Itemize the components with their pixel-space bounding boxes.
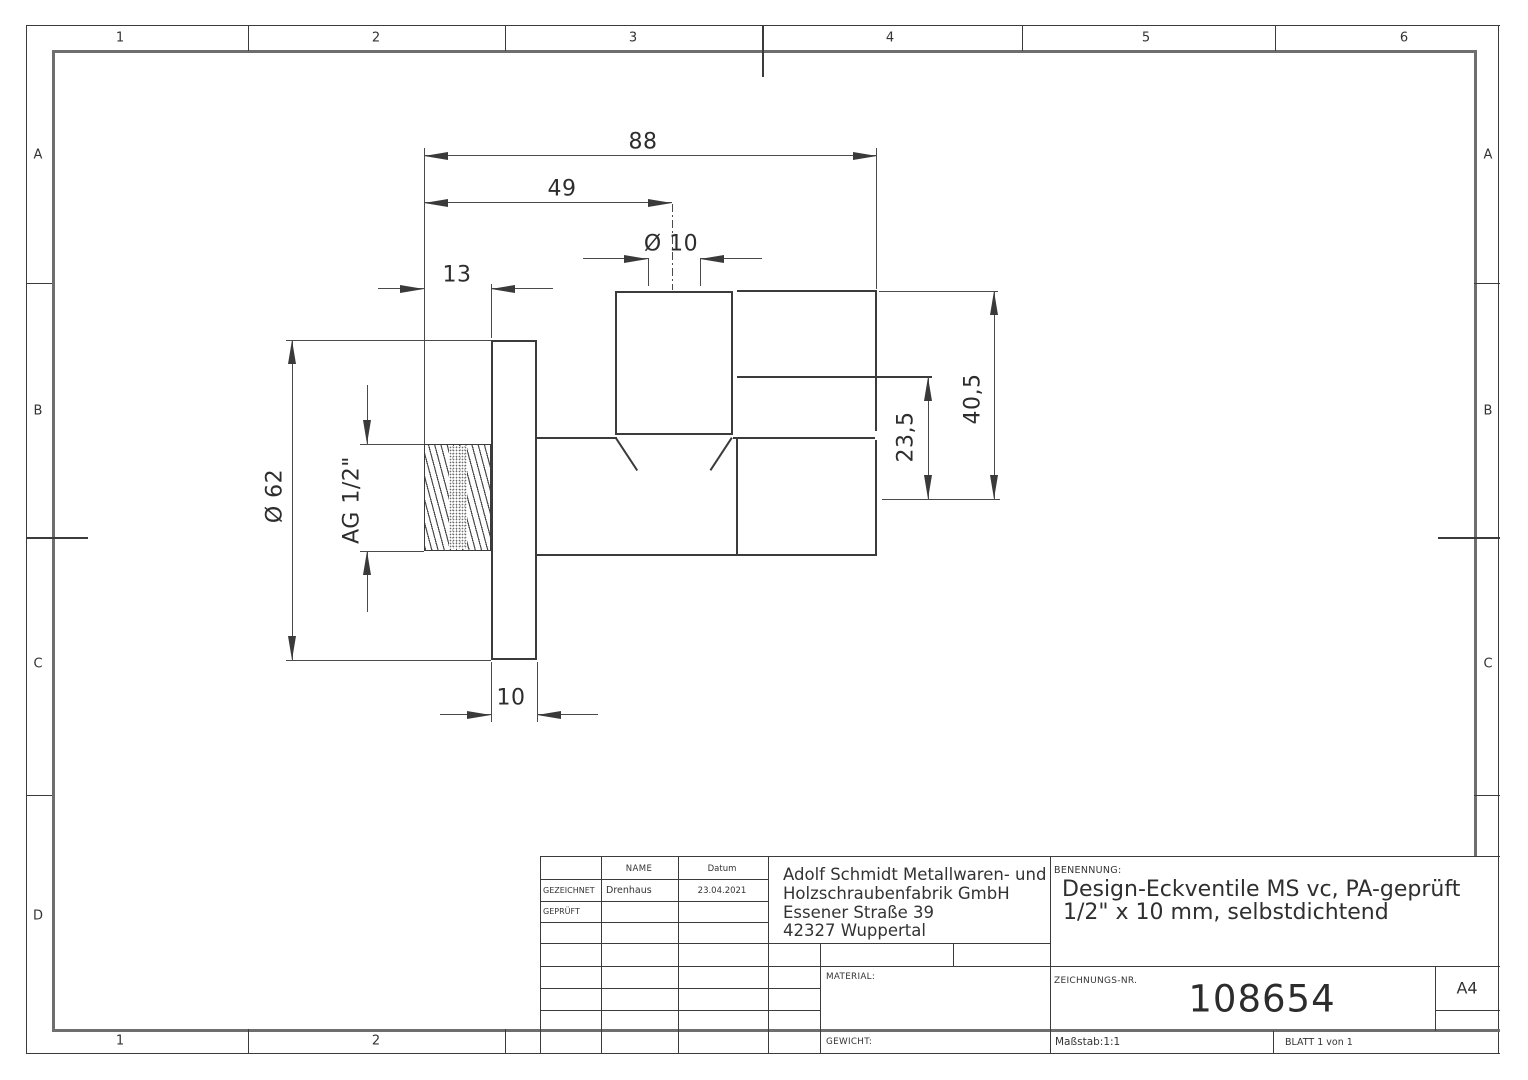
drawn-label: GEZEICHNET [543, 886, 595, 895]
extension-line [424, 148, 425, 444]
outlet-pipe-outline [615, 291, 733, 435]
titleblock-line [540, 988, 820, 989]
chamfer-line [710, 437, 732, 470]
wall-plate-outline [491, 340, 537, 660]
extension-line [882, 499, 1000, 500]
extension-line [286, 340, 491, 341]
dim-ag-label: AG 1/2" [340, 456, 365, 544]
drawing-sheet: 1 2 3 4 5 6 1 2 A B C D A B C 88 [0, 0, 1528, 1080]
dim-arrow [467, 711, 491, 719]
titleblock-line [1050, 856, 1051, 1054]
titleblock-line [1435, 1010, 1500, 1011]
body-inner-edge [736, 439, 738, 556]
grid-tick [248, 25, 249, 51]
handle-step-edge [737, 376, 932, 378]
inner-frame-top [52, 50, 1476, 53]
scale-label: Maßstab:1:1 [1055, 1036, 1120, 1048]
grid-label-col: 6 [1400, 31, 1408, 46]
date-header: Datum [708, 864, 737, 874]
dim-arrow [400, 285, 424, 293]
inner-frame-right [1474, 50, 1477, 857]
dim-10-label: 10 [497, 686, 526, 711]
grid-label-row: B [34, 404, 43, 419]
dim-arrow [853, 152, 877, 160]
weight-label: GEWICHT: [826, 1037, 872, 1047]
sheet-label: BLATT 1 von 1 [1285, 1037, 1353, 1048]
titleblock-line [1435, 966, 1436, 1031]
dim-88-line [424, 155, 877, 156]
paper-format: A4 [1456, 979, 1477, 998]
titleblock-line [540, 966, 1500, 967]
titleblock-line [540, 1010, 820, 1011]
inner-frame-left [52, 50, 55, 1031]
grid-tick [1275, 25, 1276, 51]
drawing-no-label: ZEICHNUNGS-NR. [1054, 976, 1137, 986]
material-label: MATERIAL: [826, 972, 875, 982]
grid-tick [26, 283, 52, 284]
titleblock-line [1273, 1031, 1274, 1054]
titleblock-line [601, 856, 602, 1054]
dim-49-line [424, 202, 672, 203]
body-bottom-edge [537, 554, 877, 556]
dim-arrow [363, 551, 371, 575]
handle-top-edge [737, 290, 877, 292]
titleblock-line [953, 943, 954, 966]
grid-label-row: B [1484, 404, 1493, 419]
dim-405-label: 40,5 [961, 374, 986, 425]
extension-line [879, 291, 998, 292]
dim-d62-label: Ø 62 [263, 469, 288, 523]
grid-tick [505, 1029, 506, 1054]
grid-tick-center [26, 537, 88, 539]
body-top-edge [733, 437, 875, 439]
grid-label-col: 3 [629, 31, 637, 46]
dim-arrow [363, 420, 371, 444]
grid-tick [505, 25, 506, 51]
drawn-by: Drenhaus [606, 885, 652, 896]
drawing-number: 108654 [1188, 978, 1335, 1021]
extension-line [286, 660, 491, 661]
dim-49-label: 49 [548, 177, 577, 202]
outer-border-right [1498, 25, 1499, 1054]
dim-arrow [924, 377, 932, 401]
dim-235-label: 23,5 [894, 412, 919, 463]
company-line: Essener Straße 39 [783, 904, 1046, 923]
dim-arrow [648, 199, 672, 207]
body-top-edge [537, 437, 617, 439]
titleblock-line [540, 856, 1500, 857]
dim-arrow [537, 711, 561, 719]
dim-arrow [288, 340, 296, 364]
name-header: NAME [626, 864, 652, 874]
dim-arrow [990, 475, 998, 499]
grid-label-row: A [34, 148, 43, 163]
part-title-line1: Design-Eckventile MS vc, PA-geprüft [1062, 877, 1460, 902]
titleblock-line [540, 856, 541, 1054]
drawn-date: 23.04.2021 [698, 886, 747, 896]
grid-label-col: 2 [372, 31, 380, 46]
grid-tick [1022, 25, 1023, 51]
titleblock-line [820, 943, 821, 1054]
company-line: 42327 Wuppertal [783, 922, 1046, 941]
extension-line [876, 148, 877, 289]
grid-label-col: 1 [116, 31, 124, 46]
grid-tick [1474, 795, 1500, 796]
dim-d10-label: Ø 10 [644, 232, 698, 257]
dim-88-label: 88 [629, 130, 658, 155]
outer-border-left [26, 25, 27, 1054]
part-title-line2: 1/2" x 10 mm, selbstdichtend [1063, 900, 1389, 925]
dim-arrow [491, 285, 515, 293]
inner-frame-bottom [52, 1029, 1500, 1032]
dim-arrow [700, 255, 724, 263]
titleblock-line [678, 856, 679, 1054]
thread-seal-band [449, 446, 467, 549]
dim-405-line [994, 291, 995, 499]
grid-tick [1474, 283, 1500, 284]
grid-tick-center [1438, 537, 1500, 539]
dim-arrow [924, 475, 932, 499]
dim-arrow [424, 199, 448, 207]
grid-label-row: A [1484, 148, 1493, 163]
company-line: Holzschraubenfabrik GmbH [783, 885, 1046, 904]
grid-label-row: C [1483, 657, 1492, 672]
grid-tick-center [762, 25, 764, 77]
body-right-edge [875, 440, 877, 556]
benennung-label: BENENNUNG: [1054, 865, 1121, 876]
titleblock-line [768, 856, 769, 1054]
company-line: Adolf Schmidt Metallwaren- und [783, 866, 1046, 885]
dim-arrow [288, 636, 296, 660]
checked-label: GEPRÜFT [543, 907, 580, 916]
grid-tick [26, 795, 52, 796]
handle-right-edge [875, 291, 877, 431]
titleblock-line [540, 901, 768, 902]
chamfer-line [615, 437, 637, 470]
dim-arrow [424, 152, 448, 160]
titleblock-line [540, 879, 768, 880]
dim-d62-line [292, 340, 293, 660]
grid-label-col: 2 [372, 1034, 380, 1049]
dim-arrow [990, 291, 998, 315]
grid-tick [248, 1029, 249, 1054]
grid-label-col: 5 [1142, 31, 1150, 46]
grid-label-col: 4 [886, 31, 894, 46]
titleblock-line [540, 922, 768, 923]
grid-label-row: D [33, 909, 43, 924]
dim-13-label: 13 [443, 263, 472, 288]
company-address: Adolf Schmidt Metallwaren- und Holzschra… [783, 866, 1046, 941]
grid-label-row: C [33, 657, 42, 672]
grid-label-col: 1 [116, 1034, 124, 1049]
titleblock-line [540, 943, 1050, 944]
